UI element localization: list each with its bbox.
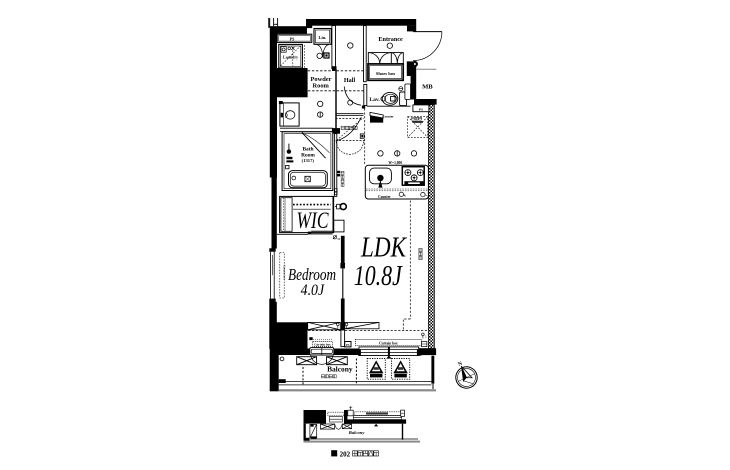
svg-text:Counter: Counter xyxy=(378,195,391,199)
svg-text:PS: PS xyxy=(290,37,295,42)
svg-text:PS: PS xyxy=(419,107,423,111)
svg-text:Curtain box: Curtain box xyxy=(314,342,331,346)
svg-text:Shoes box: Shoes box xyxy=(376,71,396,76)
svg-text:4.0J: 4.0J xyxy=(301,282,325,299)
svg-text:Curtain box: Curtain box xyxy=(282,265,286,280)
svg-text:Balcony: Balcony xyxy=(348,430,366,435)
svg-text:10.8J: 10.8J xyxy=(354,261,403,292)
svg-text:Entrance: Entrance xyxy=(378,36,403,43)
svg-text:Laundry: Laundry xyxy=(283,55,298,60)
svg-text:Hall: Hall xyxy=(344,77,356,84)
svg-text:MB: MB xyxy=(422,84,433,91)
svg-text:LDK: LDK xyxy=(360,231,407,263)
svg-text:Curtain box: Curtain box xyxy=(379,342,398,346)
svg-text:202: 202 xyxy=(340,450,351,458)
svg-text:Lav.: Lav. xyxy=(369,97,380,103)
svg-text:W=1,800: W=1,800 xyxy=(388,161,402,165)
svg-text:Balcony: Balcony xyxy=(327,365,353,374)
svg-text:Counter: Counter xyxy=(382,114,394,118)
svg-text:(3,5,7,9F): (3,5,7,9F) xyxy=(395,374,407,378)
svg-text:(2,4,6,8F): (2,4,6,8F) xyxy=(370,374,382,378)
svg-text:Lin.: Lin. xyxy=(319,35,327,40)
svg-text:(1317): (1317) xyxy=(302,158,315,163)
svg-text:PS: PS xyxy=(346,343,350,347)
svg-text:Room: Room xyxy=(313,83,330,90)
svg-text:Bedroom: Bedroom xyxy=(288,265,336,284)
svg-text:20: 20 xyxy=(337,237,341,241)
svg-text:WIC: WIC xyxy=(297,208,329,233)
